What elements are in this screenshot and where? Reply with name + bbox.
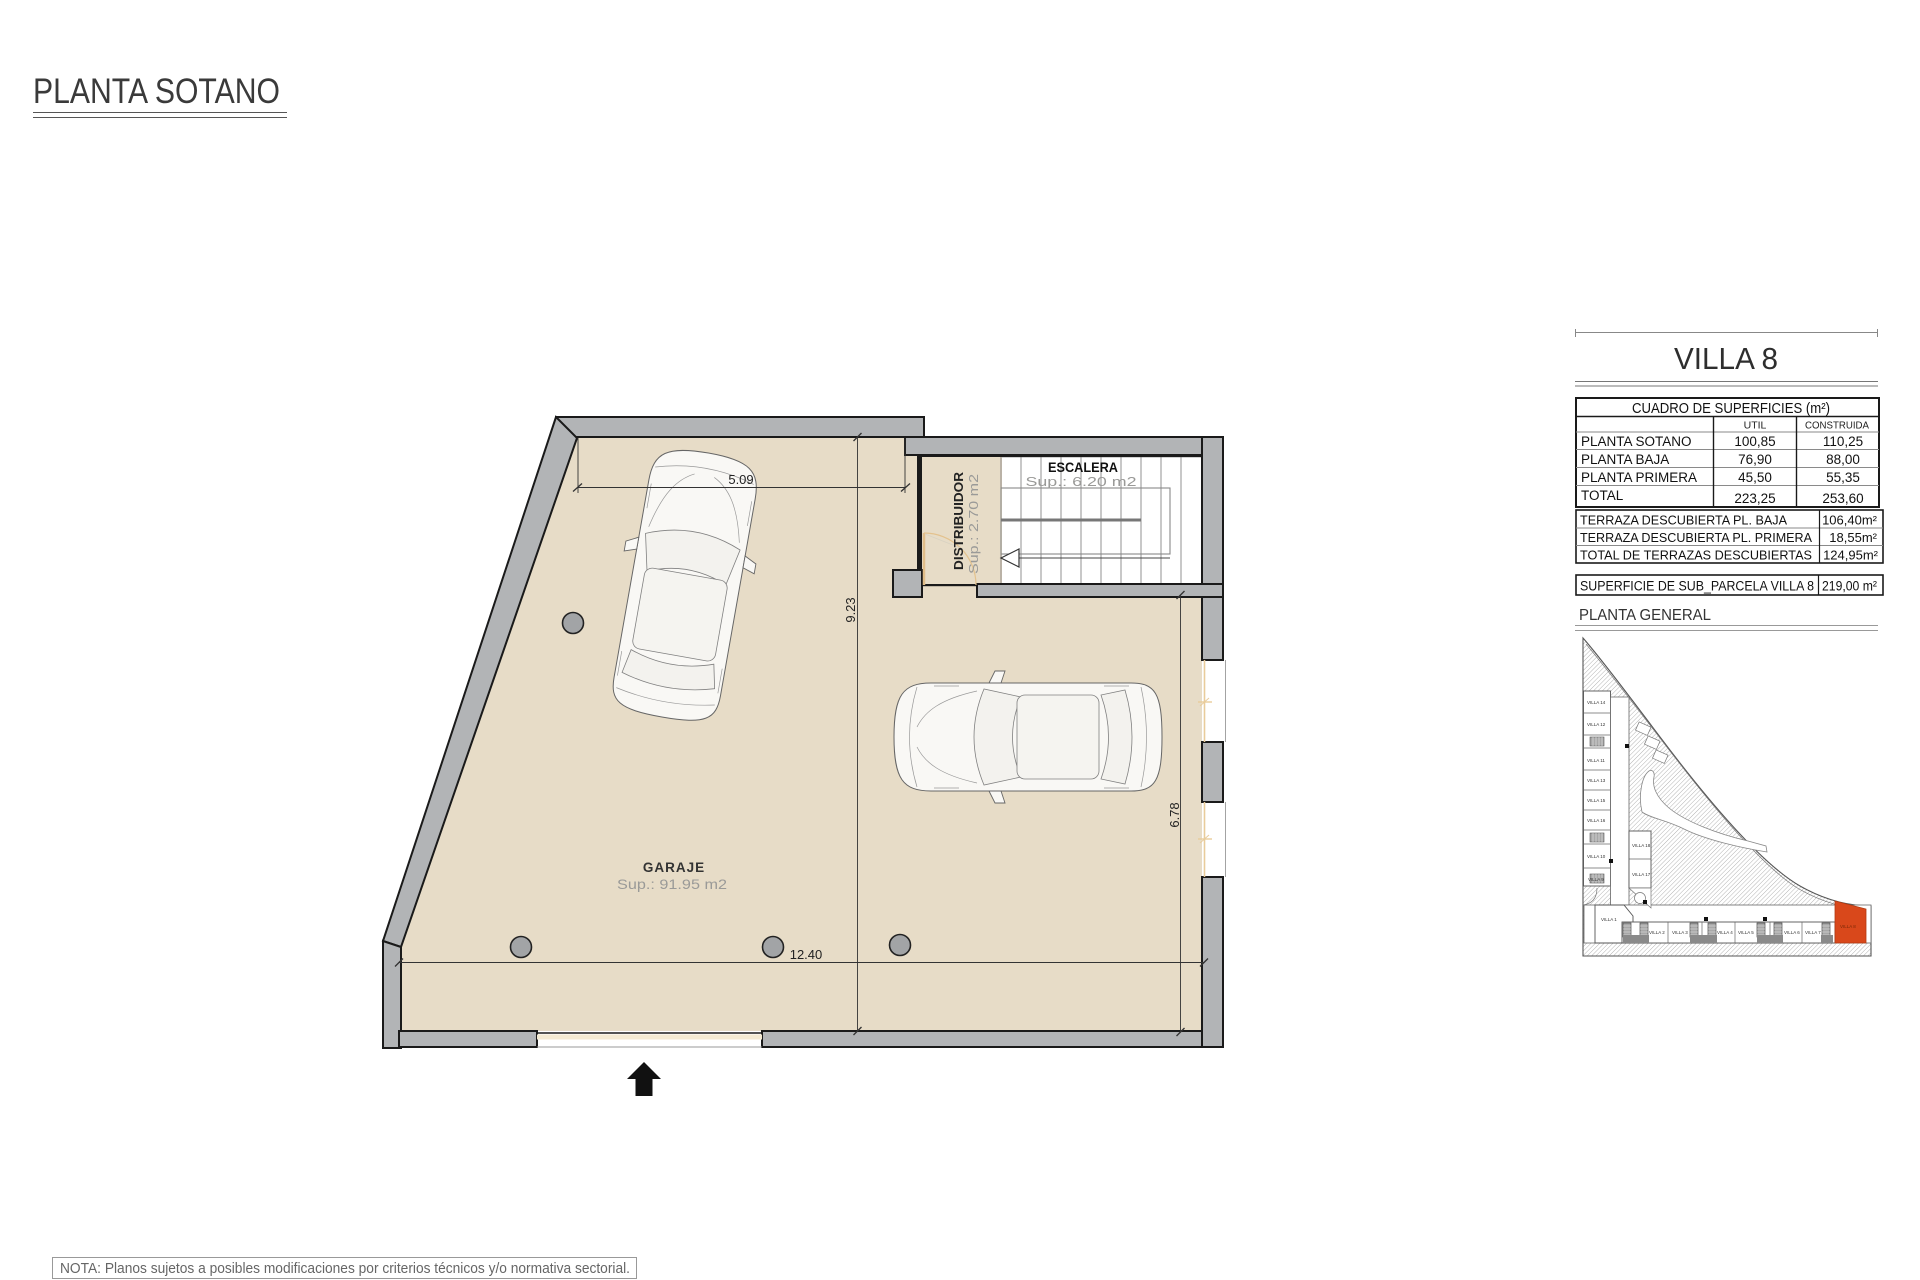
svg-text:UTIL: UTIL (1744, 420, 1767, 432)
svg-text:219,00 m²: 219,00 m² (1822, 579, 1877, 594)
svg-text:223,25: 223,25 (1734, 491, 1775, 506)
svg-text:CUADRO DE SUPERFICIES (m²): CUADRO DE SUPERFICIES (m²) (1632, 401, 1830, 417)
svg-text:VILLA 17: VILLA 17 (1632, 872, 1651, 877)
svg-text:100,85: 100,85 (1734, 434, 1775, 449)
svg-text:PLANTA SOTANO: PLANTA SOTANO (33, 72, 280, 111)
svg-text:GARAJE: GARAJE (643, 860, 705, 875)
svg-text:124,95m²: 124,95m² (1823, 548, 1879, 563)
svg-text:106,40m²: 106,40m² (1822, 513, 1878, 528)
svg-text:VILLA 4: VILLA 4 (1717, 930, 1733, 935)
svg-text:NOTA: Planos sujetos a posible: NOTA: Planos sujetos a posibles modifica… (60, 1261, 630, 1277)
svg-text:VILLA 18: VILLA 18 (1632, 843, 1651, 848)
svg-text:VILLA 8: VILLA 8 (1674, 341, 1778, 376)
svg-text:VILLA 3: VILLA 3 (1672, 930, 1688, 935)
svg-text:ESCALERA: ESCALERA (1048, 459, 1118, 475)
svg-text:VILLA 2: VILLA 2 (1649, 930, 1665, 935)
svg-text:VILLA 16: VILLA 16 (1587, 818, 1606, 823)
svg-text:110,25: 110,25 (1823, 434, 1863, 449)
svg-text:55,35: 55,35 (1826, 470, 1860, 485)
svg-text:VILLA 14: VILLA 14 (1587, 700, 1606, 705)
svg-text:88,00: 88,00 (1826, 452, 1860, 467)
svg-text:Sup.: 2.70 m2: Sup.: 2.70 m2 (967, 474, 981, 574)
svg-text:VILLA 6: VILLA 6 (1784, 930, 1800, 935)
svg-text:VILLA 13: VILLA 13 (1587, 778, 1606, 783)
svg-text:SUPERFICIE DE SUB_PARCELA VILL: SUPERFICIE DE SUB_PARCELA VILLA 8 (1580, 579, 1814, 594)
svg-text:DISTRIBUIDOR: DISTRIBUIDOR (952, 472, 966, 570)
svg-text:PLANTA SOTANO: PLANTA SOTANO (1581, 434, 1692, 449)
svg-text:76,90: 76,90 (1738, 452, 1772, 467)
svg-text:VILLA 15: VILLA 15 (1587, 798, 1606, 803)
svg-text:VILLA 12: VILLA 12 (1587, 722, 1606, 727)
svg-text:VILLA 11: VILLA 11 (1587, 758, 1605, 763)
svg-text:45,50: 45,50 (1738, 470, 1772, 485)
svg-text:VILLA 10: VILLA 10 (1587, 854, 1606, 859)
svg-text:CONSTRUIDA: CONSTRUIDA (1805, 420, 1869, 432)
svg-text:PLANTA PRIMERA: PLANTA PRIMERA (1581, 470, 1697, 485)
svg-text:TOTAL DE TERRAZAS DESCUBIERTAS: TOTAL DE TERRAZAS DESCUBIERTAS (1580, 548, 1812, 563)
svg-text:253,60: 253,60 (1822, 491, 1863, 506)
svg-text:6.78: 6.78 (1167, 802, 1182, 827)
svg-text:12.40: 12.40 (790, 947, 823, 962)
svg-text:5.09: 5.09 (728, 472, 753, 487)
svg-text:9.23: 9.23 (843, 597, 858, 622)
svg-text:TERRAZA DESCUBIERTA PL. PRIMER: TERRAZA DESCUBIERTA PL. PRIMERA (1580, 530, 1812, 545)
svg-text:Sup.: 6.20 m2: Sup.: 6.20 m2 (1026, 474, 1137, 489)
svg-text:VILLA 5: VILLA 5 (1738, 930, 1754, 935)
svg-text:18,55m²: 18,55m² (1829, 530, 1877, 545)
svg-text:PLANTA GENERAL: PLANTA GENERAL (1579, 607, 1711, 624)
svg-text:VILLA 9: VILLA 9 (1588, 877, 1604, 882)
svg-text:TERRAZA DESCUBIERTA PL. BAJA: TERRAZA DESCUBIERTA PL. BAJA (1580, 513, 1787, 528)
svg-text:Sup.: 91.95 m2: Sup.: 91.95 m2 (617, 876, 727, 892)
svg-text:PLANTA BAJA: PLANTA BAJA (1581, 452, 1669, 467)
svg-text:TOTAL: TOTAL (1581, 488, 1624, 503)
svg-text:VILLA 1: VILLA 1 (1601, 917, 1617, 922)
svg-text:VILLA 7: VILLA 7 (1805, 930, 1821, 935)
svg-text:VILLA 8: VILLA 8 (1840, 924, 1856, 929)
